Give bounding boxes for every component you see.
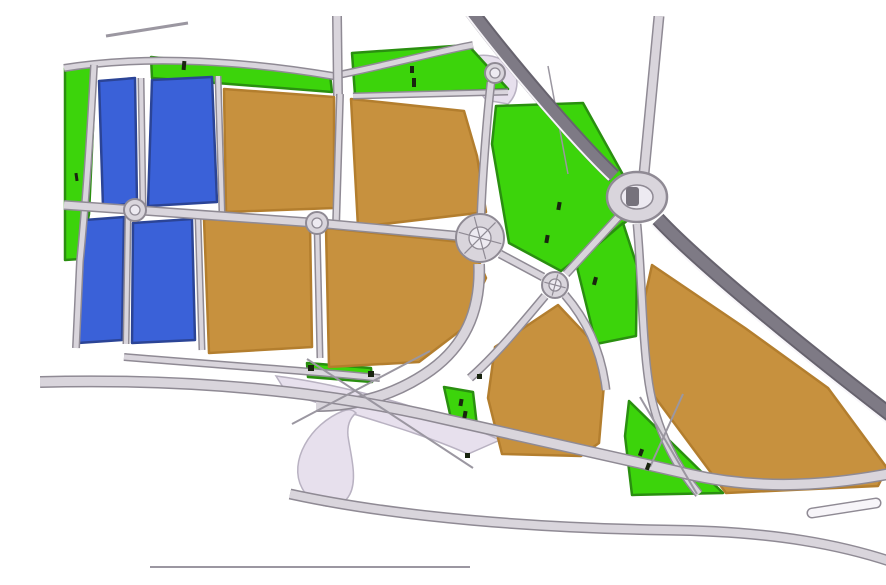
tan-parcel-b <box>351 99 486 227</box>
top-left-road-stub <box>106 23 188 36</box>
roundabout-west-island <box>130 205 140 215</box>
plan-label-mark-3 <box>412 78 416 87</box>
plan-canvas <box>40 16 886 569</box>
zoning-plan-map <box>40 16 886 569</box>
plan-label-mark-15 <box>465 453 470 458</box>
tan-parcel-c <box>204 219 312 353</box>
blue-column-road-upper <box>141 78 143 207</box>
plan-label-mark-13 <box>368 371 374 377</box>
plan-label-mark-14 <box>477 374 482 379</box>
blue-parcel-north <box>148 77 217 206</box>
north-vertical-road <box>337 16 338 96</box>
blue-parcel-nw <box>99 78 137 207</box>
plan-label-mark-12 <box>308 365 314 371</box>
roundabout-midwest-island <box>312 218 322 228</box>
roundabout-main-ellipse-blob <box>626 187 639 206</box>
plan-label-mark-1 <box>182 61 187 70</box>
tan-parcel-a <box>224 89 334 212</box>
blue-parcel-south <box>132 219 195 343</box>
median-island <box>812 503 876 513</box>
plan-label-mark-2 <box>410 66 414 73</box>
interchange-circle-island <box>490 68 500 78</box>
blue-column-road-lower <box>126 216 128 344</box>
